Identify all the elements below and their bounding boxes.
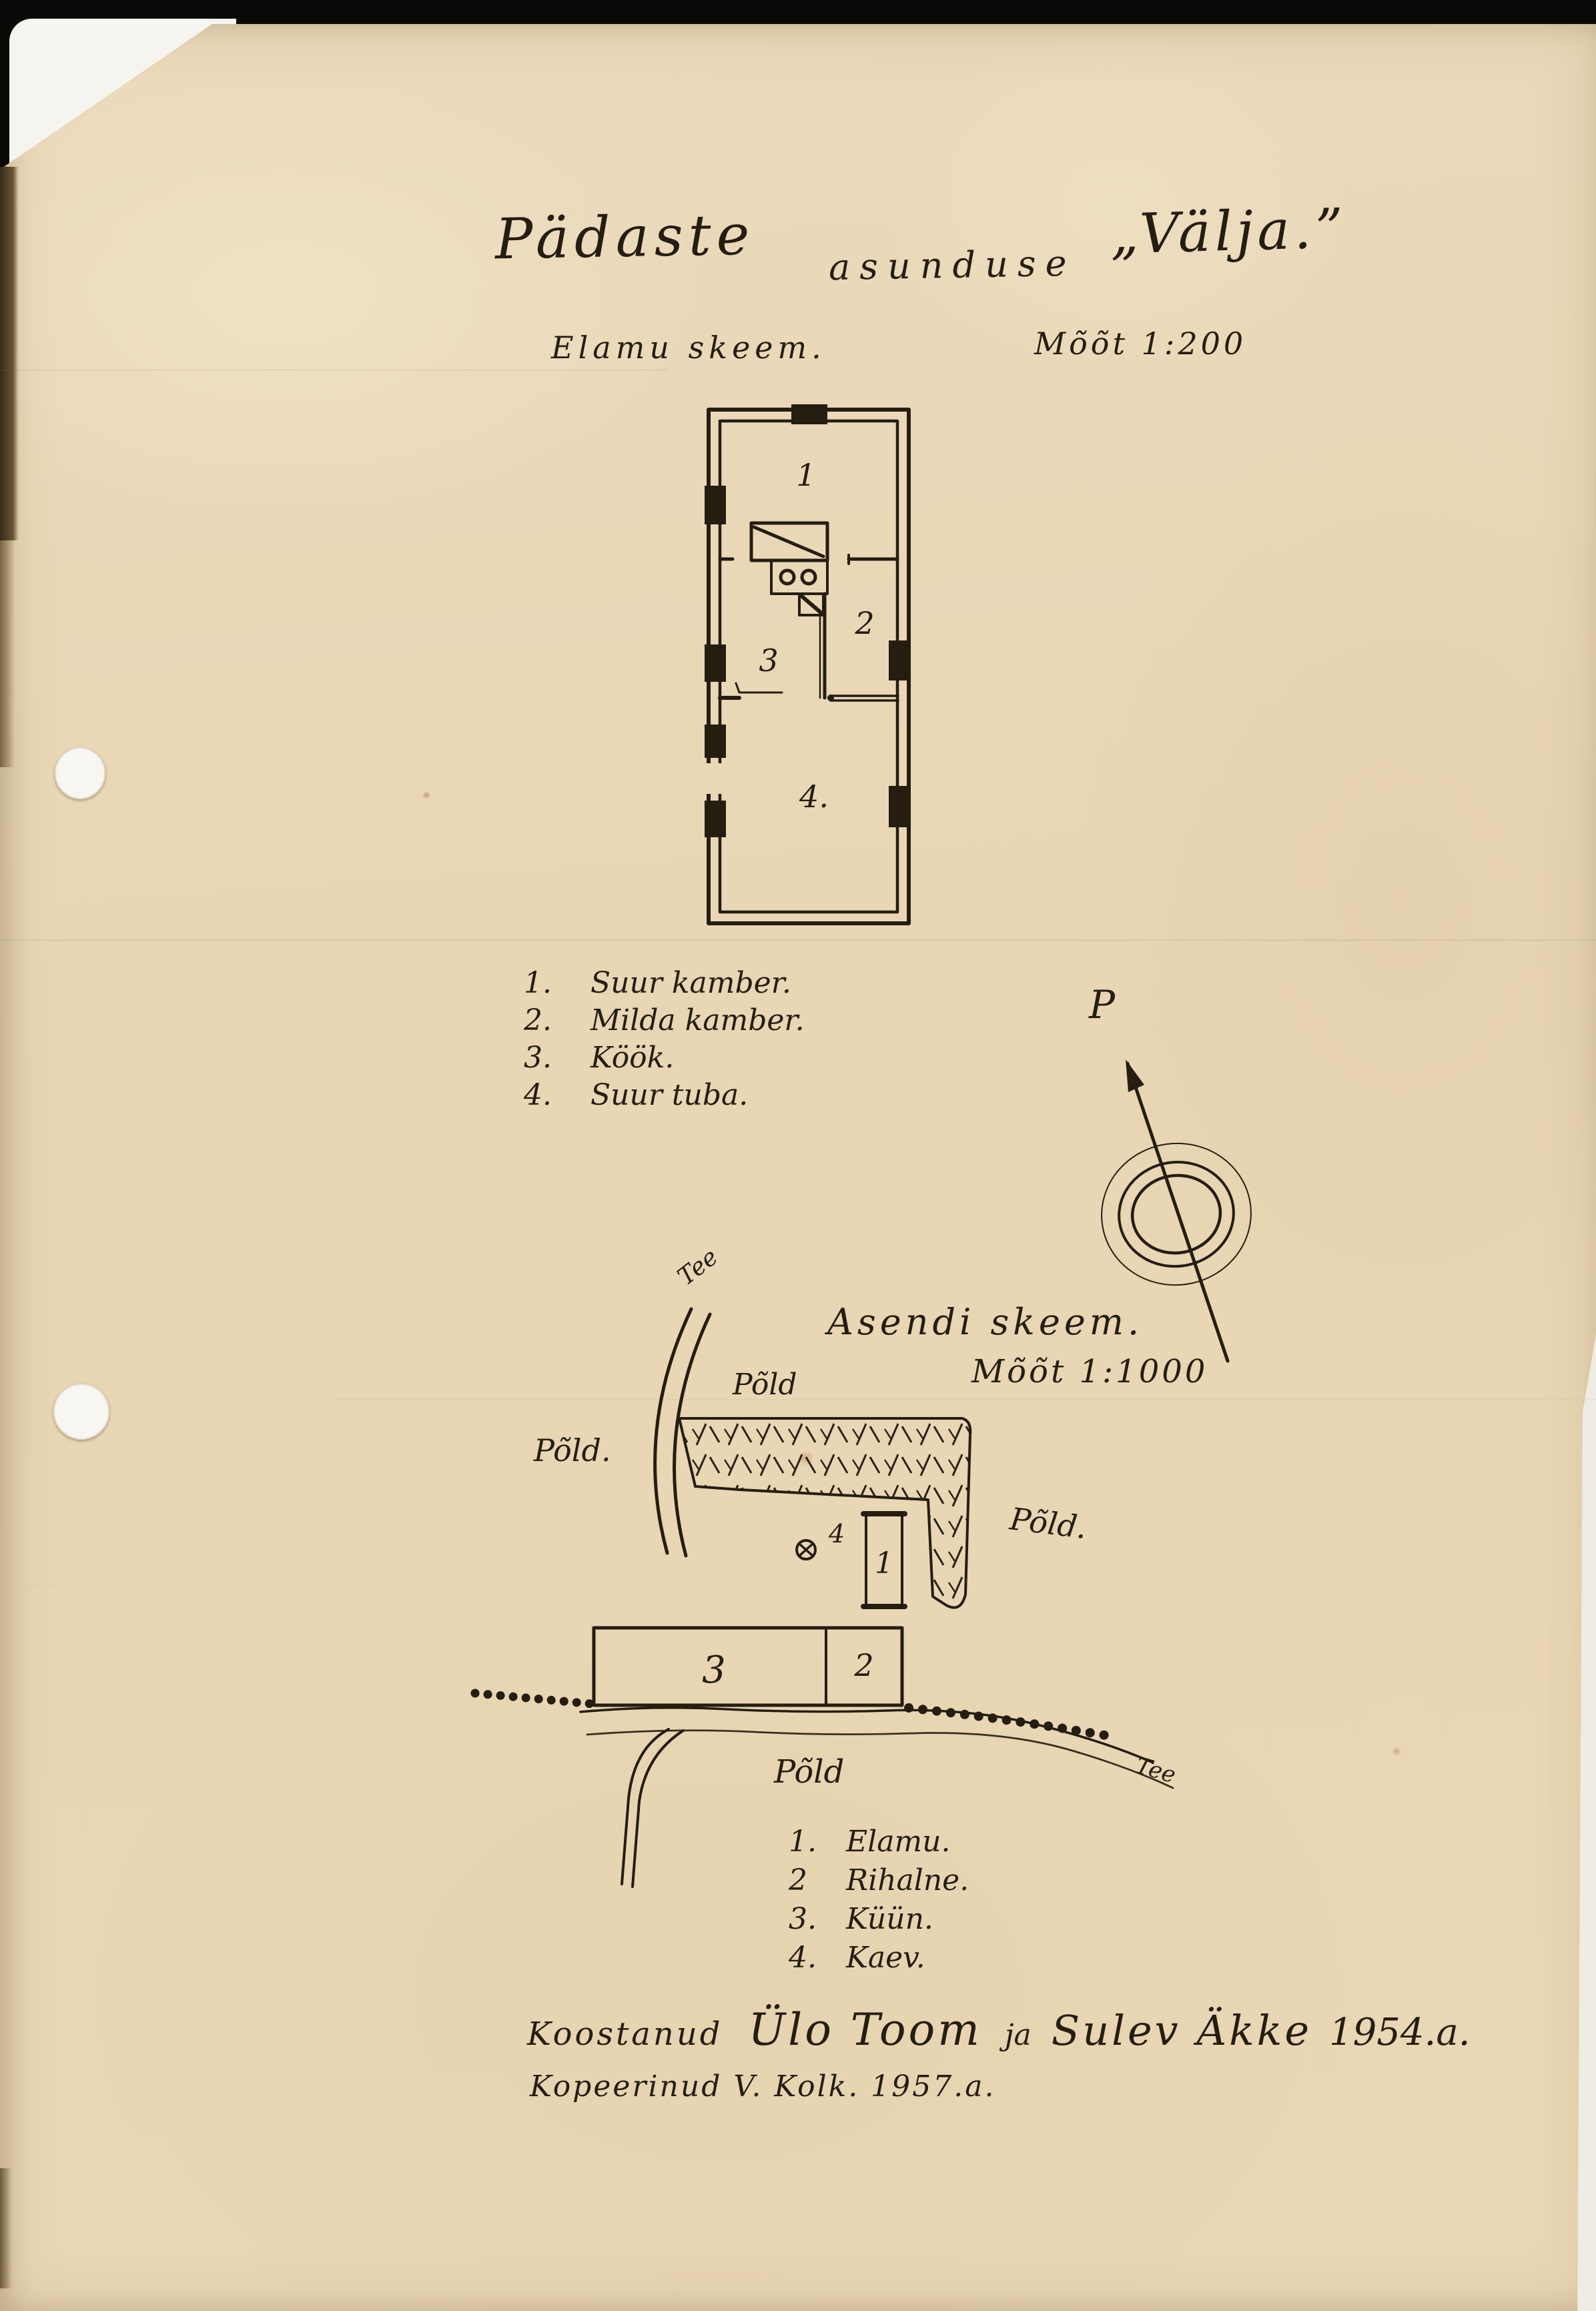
room-2-number: 2: [854, 605, 874, 641]
credits-author-1: Ülo Toom: [748, 2004, 981, 2055]
credits-line-2: Kopeerinud V. Kolk. 1957.a.: [530, 2069, 995, 2104]
legend-text: Rihalne.: [846, 1863, 969, 1897]
stone-fence-right: [909, 1708, 1109, 1736]
legend-number: 3.: [524, 1039, 590, 1077]
field-label-bottom: Põld: [773, 1753, 844, 1791]
credits-prefix: Koostanud: [527, 2015, 723, 2053]
legend-number: 3.: [789, 1900, 846, 1939]
room-4-number: 4.: [799, 779, 829, 815]
legend-text: Elamu.: [846, 1825, 950, 1859]
legend-text: Köök.: [590, 1041, 674, 1075]
credits-author-2: Sulev Äkke: [1052, 2006, 1312, 2055]
field-label-top: Põld: [732, 1368, 797, 1402]
legend-number: 4.: [789, 1939, 846, 1977]
site-building-2-number: 2: [853, 1647, 873, 1683]
stone-fence-left: [475, 1693, 592, 1704]
door-leaf: [736, 683, 782, 692]
legend-number: 1.: [789, 1823, 846, 1861]
floor-plan-label: Elamu skeem.: [551, 330, 826, 366]
floor-plan-legend: 1.Suur kamber. 2.Milda kamber. 3.Köök. 4…: [524, 965, 805, 1114]
site-plan-legend: 1.Elamu. 2Rihalne. 3.Küün. 4.Kaev.: [789, 1823, 969, 1977]
field-label-left: Põld.: [533, 1432, 611, 1468]
road-label-bottom: Tee: [1133, 1752, 1179, 1789]
room-3-number: 3: [759, 642, 778, 678]
list-item: 3.Küün.: [789, 1900, 969, 1939]
legend-text: Suur tuba.: [590, 1078, 748, 1112]
legend-number: 4.: [524, 1077, 590, 1114]
inner-wall: [720, 421, 897, 912]
legend-text: Kaev.: [846, 1941, 925, 1975]
site-building-1-number: 1: [875, 1546, 893, 1580]
site-plan-drawing: Tee Põld Põld. Põld. 4 1 3 2 Põld Tee: [434, 1234, 1201, 1908]
document-content: Pädaste asunduse „Välja.” Elamu skeem. M…: [0, 0, 1596, 2311]
road-label-top: Tee: [673, 1243, 723, 1291]
page-title-part2: asunduse: [828, 242, 1076, 288]
list-item: 4.Suur tuba.: [524, 1077, 805, 1114]
page-title-part3: „Välja.”: [1110, 197, 1348, 266]
legend-text: Milda kamber.: [590, 1003, 805, 1037]
legend-text: Suur kamber.: [590, 966, 791, 1000]
list-item: 1.Elamu.: [789, 1823, 969, 1861]
field-label-right: Põld.: [1008, 1500, 1089, 1546]
credits-ja: ja: [1005, 2018, 1032, 2052]
legend-text: Küün.: [846, 1902, 933, 1936]
legend-number: 2: [789, 1861, 846, 1900]
list-item: 3.Köök.: [524, 1039, 805, 1077]
legend-number: 1.: [524, 965, 590, 1002]
legend-number: 2.: [524, 1002, 590, 1039]
list-item: 2.Milda kamber.: [524, 1002, 805, 1039]
well-icon: [797, 1540, 815, 1559]
floor-plan-drawing: 1 2 3 4.: [699, 392, 919, 946]
site-building-3-number: 3: [702, 1649, 726, 1692]
credits-line-1: KoostanudÜlo ToomjaSulev Äkke1954.a.: [527, 2004, 1471, 2055]
floor-plan-scale: Mõõt 1:200: [1034, 326, 1246, 362]
page-title-part1: Pädaste: [494, 202, 755, 272]
well-number: 4: [828, 1519, 845, 1548]
list-item: 1.Suur kamber.: [524, 965, 805, 1002]
credits-year: 1954.a.: [1329, 2011, 1471, 2054]
garden-hatched-area: [679, 1418, 970, 1608]
north-arrow-head: [1126, 1059, 1144, 1092]
list-item: 4.Kaev.: [789, 1939, 969, 1977]
room-1-number: 1: [796, 457, 815, 493]
road-branch: [622, 1729, 669, 1884]
list-item: 2Rihalne.: [789, 1861, 969, 1900]
